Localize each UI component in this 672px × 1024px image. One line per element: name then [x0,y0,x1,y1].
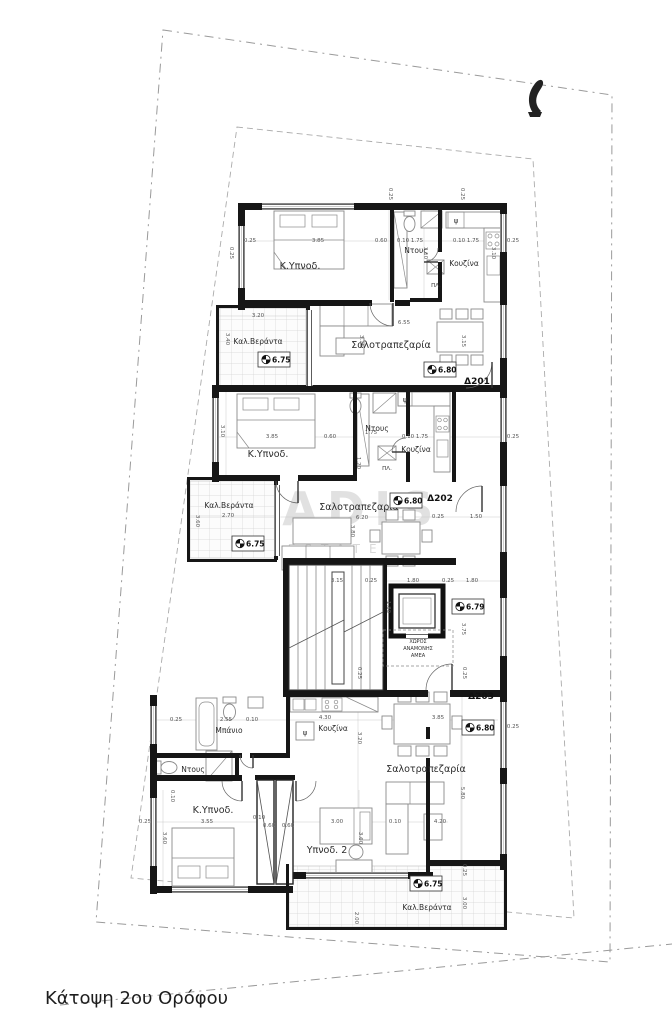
dimension-label: 3.55 [201,819,214,825]
room-label: Σαλοτραπεζαρία [319,502,399,513]
dimension-label: 0.10 [253,815,266,821]
room-label: Κ.Υπνοδ. [193,805,234,816]
svg-text:6.80: 6.80 [404,497,423,506]
dimension-label: 6.55 [398,320,411,326]
dimension-label: 5.80 [459,787,465,800]
dimension-label: 0.25 [356,667,362,680]
dimension-label: 0.60 [282,823,295,829]
washer-label: ΠΛ. [382,466,392,472]
dimension-label: 3.15 [358,335,364,348]
dimension-label: 1.50 [470,514,483,520]
shower [373,393,396,413]
dimension-label: 3.40 [224,333,230,346]
dimension-label: 3.00 [461,897,467,910]
elevation-marker: 6.80 [462,720,495,735]
fridge-symbol: ψ [454,217,459,225]
elevation-marker: 6.79 [452,599,485,614]
window [213,398,219,462]
window [275,485,281,556]
sofa [386,782,444,854]
toilet [404,211,415,232]
svg-text:6.79: 6.79 [466,603,485,612]
window [151,706,157,744]
fridge-symbol: ψ [403,396,408,404]
room-label: Καλ.Βεράντα [204,501,253,510]
window [151,798,157,866]
elevation-marker: 6.80 [390,493,423,508]
elevation-marker: 6.75 [258,352,291,367]
dimension-label: 0.25 [507,238,520,244]
dimension-label: 0.25 [365,578,378,584]
fridge-symbol: ψ [303,729,308,737]
dimension-label: 3.85 [312,238,325,244]
svg-text:6.80: 6.80 [438,366,457,375]
dimension-label: 3.60 [161,832,167,845]
washer-label: ΠΛ. [431,283,441,289]
dimension-label: 0.25 [507,434,520,440]
elevation-marker: 6.80 [424,362,457,377]
dimension-label: 0.60 [375,238,388,244]
dimension-label: 0.10 [389,819,402,825]
dimension-label: 2.70 [222,513,235,519]
dimension-label: 0.25 [461,667,467,680]
kitchen-counter [398,392,450,472]
dimension-label: 1.80 [385,601,391,614]
door [222,781,242,801]
dimension-label: 0.60 [324,434,337,440]
dimension-label: 3.10 [490,247,496,260]
floor-plan-page: KADIS ESTATES [0,0,672,1024]
dimension-label: 0.25 [432,514,445,520]
window [501,784,507,854]
window [306,873,408,879]
dimension-label: 0.10 1.75 [397,238,424,244]
dimension-label: 0.10 1.75 [453,238,480,244]
bed [172,828,234,886]
dimension-label: 1.20 [355,457,361,470]
room-label: Σαλοτραπεζαρία [386,764,466,775]
dimension-label: 2.55 [220,717,233,723]
chair [349,845,363,859]
room-label: Υπνοδ. 2 [306,845,348,856]
dimension-label: 3.60 [194,515,200,528]
door-entry-d203 [426,664,452,690]
toilet [155,761,177,774]
room-label: Κουζίνα [449,259,479,268]
dimension-label: 3.80 [349,525,355,538]
dimension-label: 0.10 [169,790,175,803]
sink [248,697,263,708]
dimension-label: 0.25 [228,247,234,260]
apartment-id: Δ201 [464,377,490,387]
window [501,486,507,552]
window [501,305,507,358]
room-label: Κ.Υπνοδ. [280,261,321,272]
dimension-label: 3.85 [266,434,279,440]
bed [320,808,372,844]
room-label: Κουζίνα [318,724,348,733]
elevation-marker: 6.75 [232,536,265,551]
apartment-id: Δ203 [468,692,494,702]
door-entry-d202 [456,486,482,512]
dimension-label: 3.10 [219,425,225,438]
north-arrow-icon [528,80,543,117]
svg-text:6.75: 6.75 [246,540,265,549]
window [501,702,507,768]
floor-plan-drawing: KADIS ESTATES [0,0,672,1024]
dimension-label: 0.60 [263,823,276,829]
elevation-marker: 6.75 [410,876,443,891]
dimension-label: 3.10 [422,247,428,260]
window [239,226,245,288]
washing-machine [378,446,396,460]
dimension-label: 0.25 [442,578,455,584]
dimension-label: 0.25 [170,717,183,723]
dimension-label: 3.00 [331,819,344,825]
bathtub [196,698,217,750]
dimension-label: 0.10 1.75 [402,434,429,440]
dimension-label: 0.10 [246,717,259,723]
drawing-title: Κάτοψη 2ου Ορόφου [45,988,228,1009]
dimension-label: 3.15 [331,578,344,584]
dimension-label: 0.25 [244,238,257,244]
dining-table [382,692,462,756]
room-label: Καλ.Βεράντα [402,903,451,912]
door [296,781,316,801]
dimension-label: 0.25 [387,188,393,201]
desk [336,860,372,873]
dimension-label: 0.25 [139,819,152,825]
dimension-label: 3.20 [252,313,265,319]
dimension-label: 2.00 [353,912,359,925]
dimension-label: 3.60 [357,832,363,845]
window [501,598,507,656]
room-label: Καλ.Βεράντα [233,337,282,346]
dimension-label: 1.80 [466,578,479,584]
dimension-label: 4.20 [434,819,447,825]
amea-line3: ΑΜΕΑ [411,653,426,659]
dimension-label: 3.85 [432,715,445,721]
dimension-label: 4.30 [319,715,332,721]
dimension-label: 0.25 [507,724,520,730]
room-label: Μπάνιο [215,726,243,735]
room-label: Κ.Υπνοδ. [248,449,289,460]
window [262,204,354,210]
room-label: Κουζίνα [401,445,431,454]
window [172,887,248,893]
dimension-label: 3.20 [356,732,362,745]
window [501,214,507,252]
window [501,398,507,442]
svg-text:6.75: 6.75 [272,356,291,365]
dining-table [437,309,483,365]
apartment-id: Δ202 [427,494,453,504]
room-label: Ντους [181,765,204,774]
dimension-label: 1.75 [365,430,378,436]
amea-line1: ΧΩΡΟΣ [409,639,426,645]
window [307,310,313,386]
amea-line2: ΑΝΑΜΟΝΗΣ [403,646,433,652]
dimension-label: 0.25 [459,188,465,201]
dimension-label: 1.80 [407,578,420,584]
dimension-label: 3.75 [460,623,466,636]
dimension-label: 3.15 [460,335,466,348]
dimension-label: 6.20 [356,515,369,521]
svg-text:6.75: 6.75 [424,880,443,889]
dimension-label: 0.25 [461,864,467,877]
svg-text:6.80: 6.80 [476,724,495,733]
